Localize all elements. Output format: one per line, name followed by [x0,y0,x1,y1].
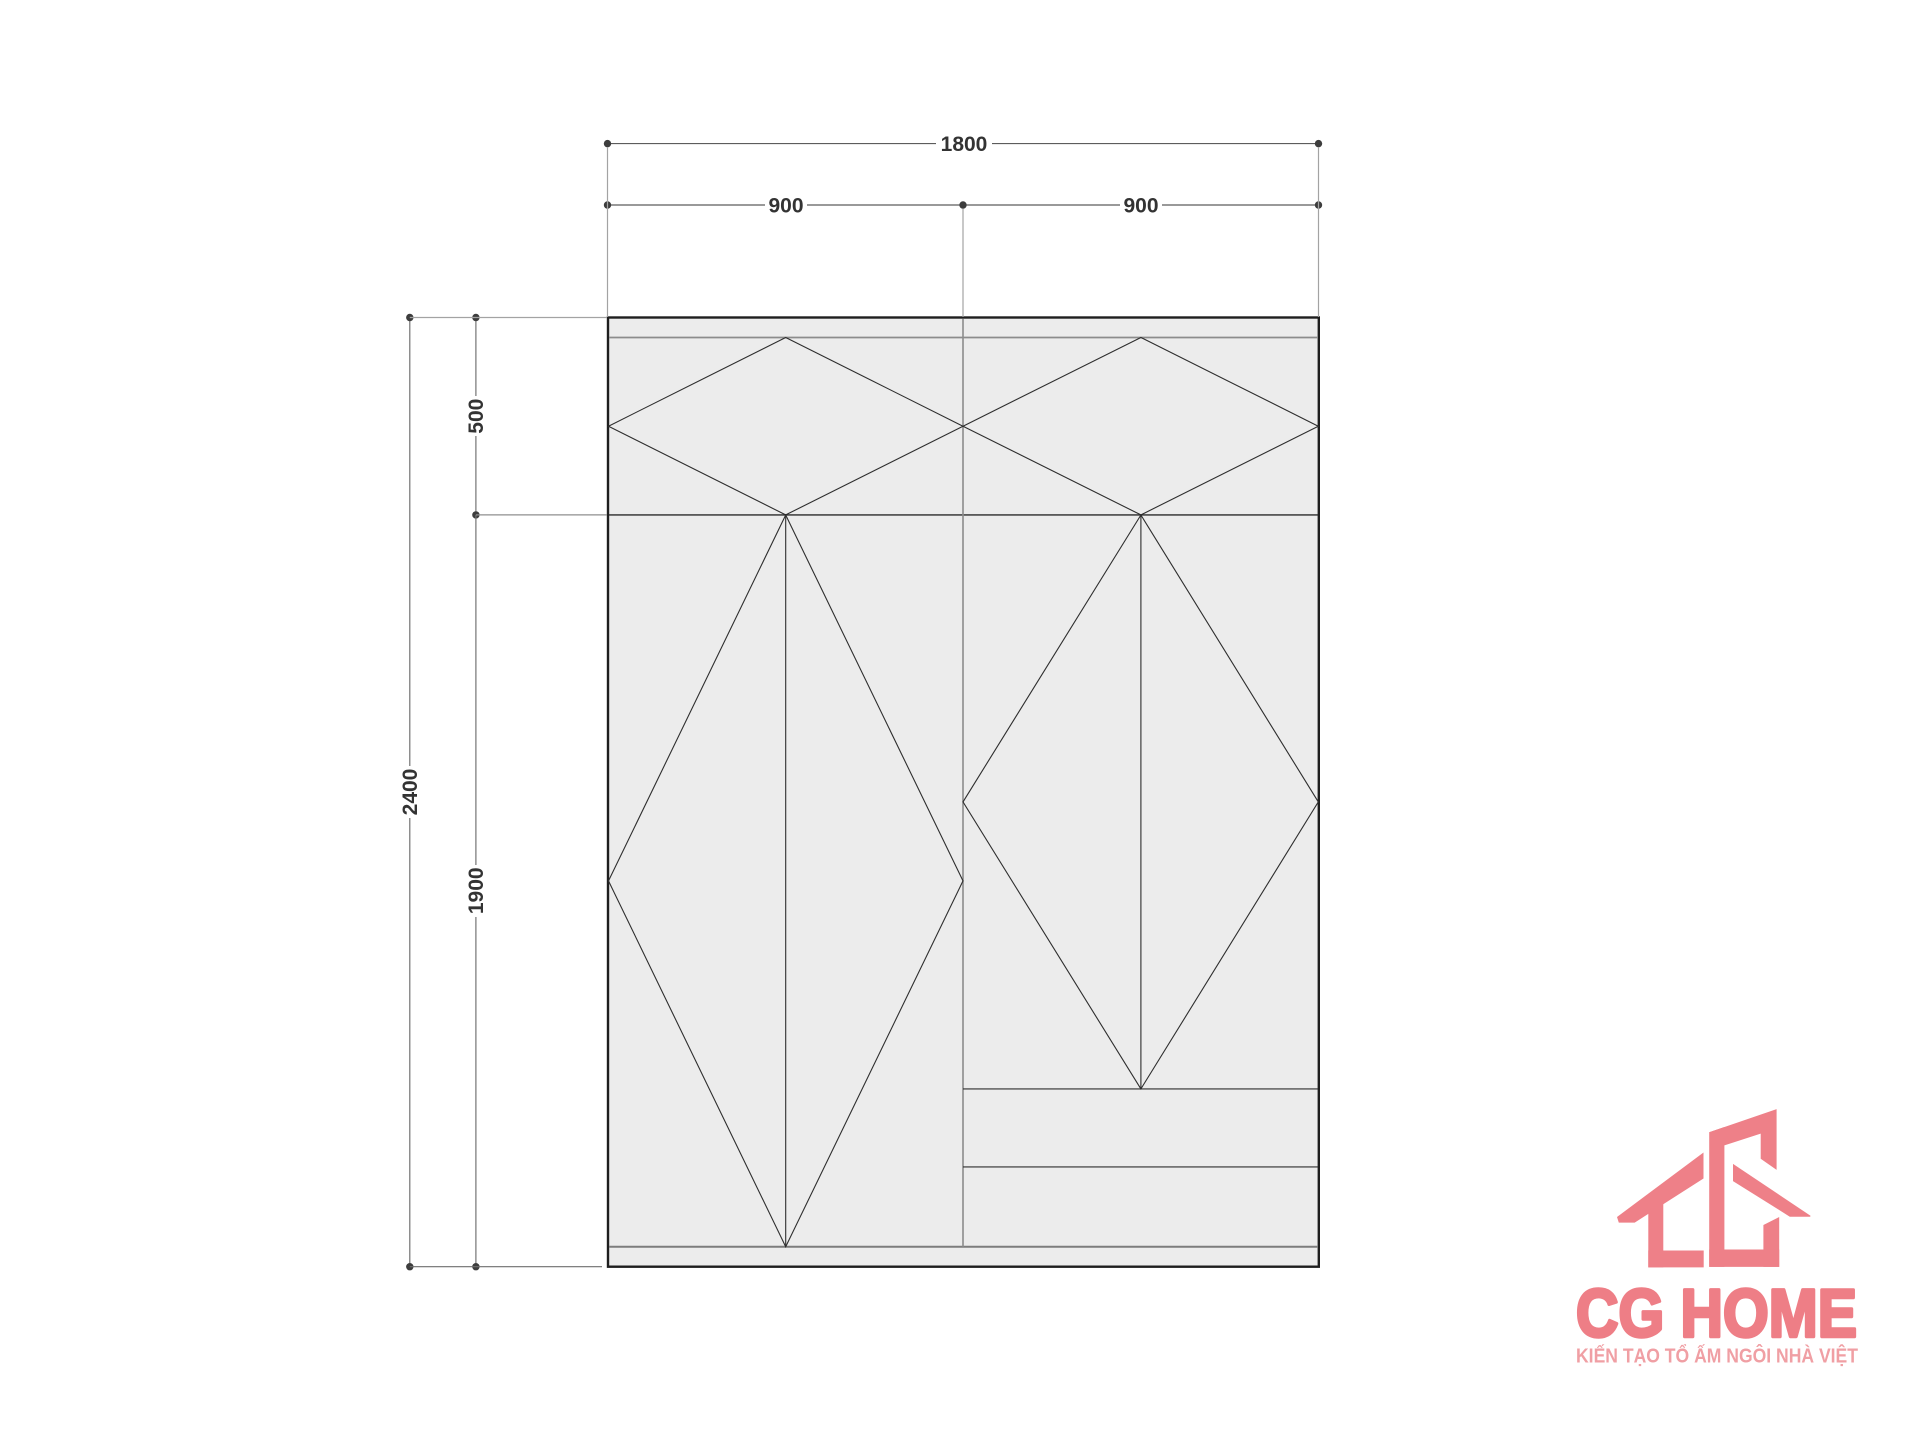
svg-text:900: 900 [768,195,803,218]
svg-text:500: 500 [465,399,488,434]
svg-text:CG HOME: CG HOME [1576,1276,1857,1352]
svg-text:2400: 2400 [399,769,422,816]
svg-text:900: 900 [1123,195,1158,218]
svg-text:KIẾN TẠO TỔ ẤM NGÔI NHÀ VIỆT: KIẾN TẠO TỔ ẤM NGÔI NHÀ VIỆT [1576,1344,1858,1368]
svg-text:1900: 1900 [465,867,488,914]
svg-text:1800: 1800 [941,133,988,156]
